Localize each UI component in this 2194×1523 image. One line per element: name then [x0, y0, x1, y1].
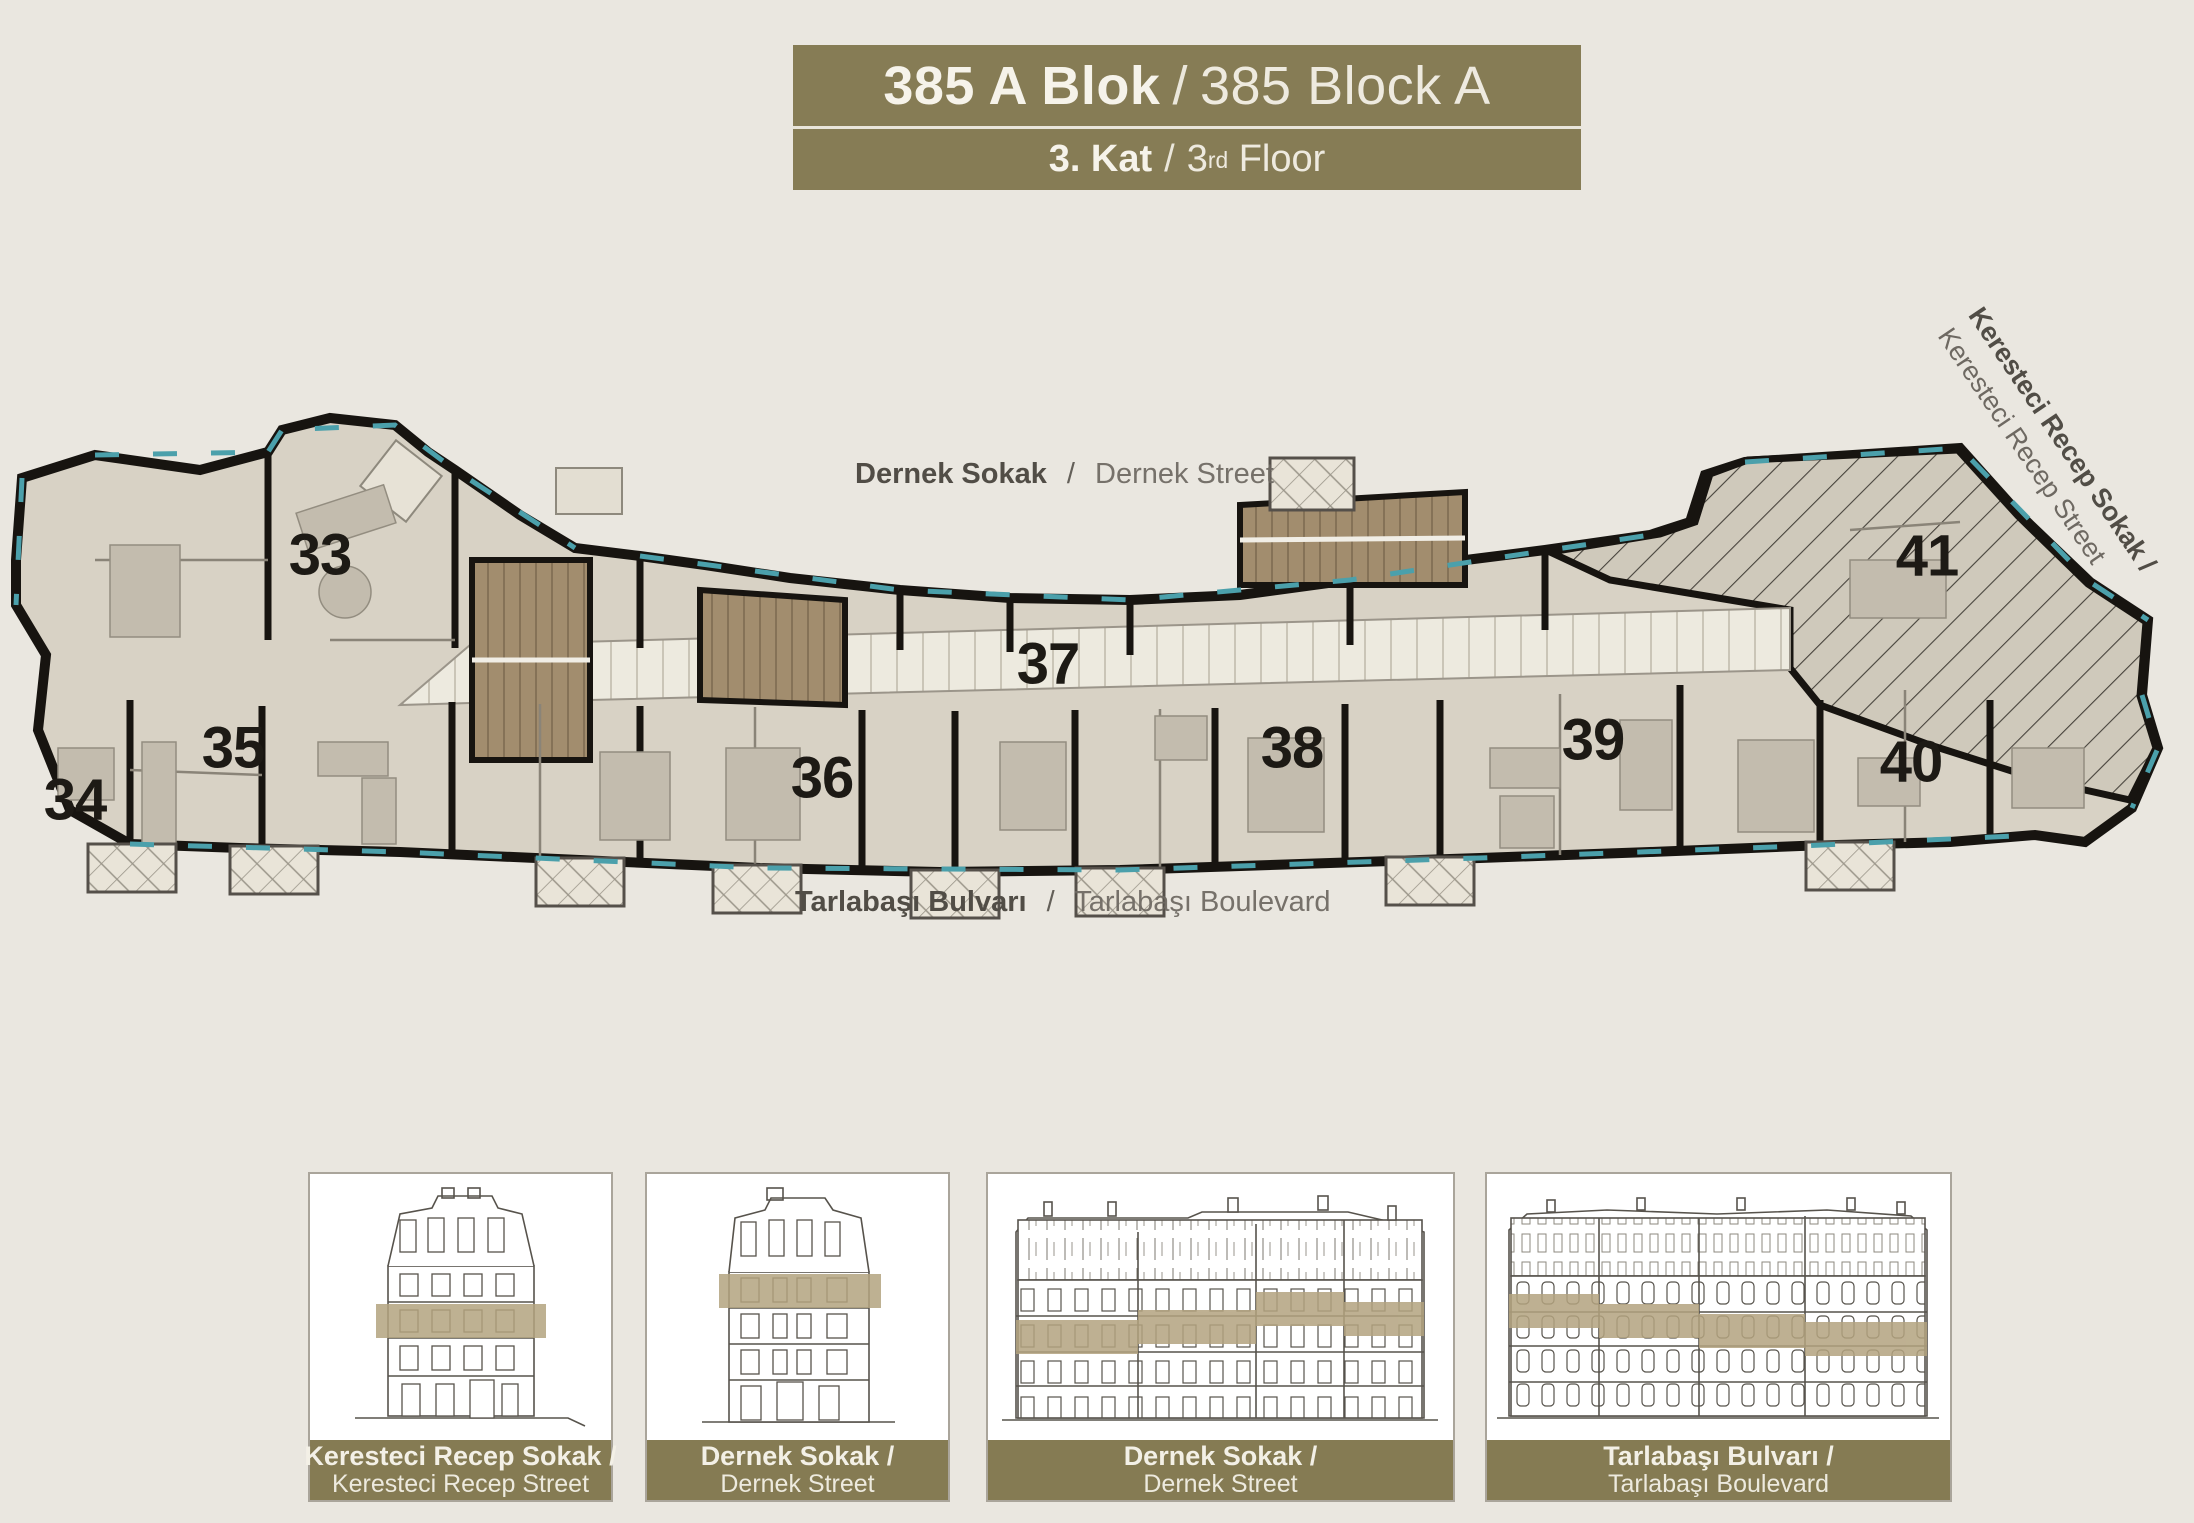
street-name-english: Tarlabaşı Boulevard	[1074, 886, 1330, 918]
elevation-card-dernek-row: Dernek Sokak / Dernek Street	[986, 1172, 1455, 1502]
title-line1: 385 A Blok / 385 Block A	[793, 45, 1581, 126]
elevation-card-tarlabasi: Tarlabaşı Bulvarı / Tarlabaşı Boulevard	[1485, 1172, 1952, 1502]
unit-number-33: 33	[289, 522, 352, 589]
elevation-caption: Dernek Sokak / Dernek Street	[647, 1440, 948, 1500]
roof-annex	[556, 468, 622, 514]
elevation-drawing	[647, 1174, 948, 1440]
unit-number-41: 41	[1896, 523, 1959, 590]
floor-number: 3	[1187, 138, 1208, 181]
unit-number-39: 39	[1562, 707, 1625, 774]
title-line2: 3. Kat / 3rd Floor	[793, 126, 1581, 190]
title-line1-english: 385 Block A	[1200, 55, 1491, 117]
caption-turkish: Dernek Sokak /	[1124, 1442, 1318, 1470]
unit-number-36: 36	[791, 745, 854, 812]
caption-english: Dernek Street	[1143, 1470, 1297, 1498]
elevation-card-dernek-single: Dernek Sokak / Dernek Street	[645, 1172, 950, 1502]
caption-english: Tarlabaşı Boulevard	[1608, 1470, 1829, 1498]
street-name-turkish: Dernek Sokak	[855, 458, 1047, 490]
elevation-caption: Dernek Sokak / Dernek Street	[988, 1440, 1453, 1500]
caption-turkish: Dernek Sokak /	[701, 1442, 895, 1470]
title-separator: /	[1164, 138, 1175, 181]
stair-core	[700, 590, 845, 705]
street-name-turkish: Tarlabaşı Bulvarı	[795, 886, 1027, 918]
unit-number-37: 37	[1017, 631, 1080, 698]
title-line1-turkish: 385 A Blok	[883, 55, 1160, 117]
title-separator: /	[1172, 55, 1188, 117]
street-label-dernek: Dernek Sokak / Dernek Street	[855, 458, 1274, 491]
street-label-tarlabasi: Tarlabaşı Bulvarı / Tarlabaşı Boulevard	[795, 886, 1331, 919]
street-name-english: Dernek Street	[1095, 458, 1274, 490]
floor-highlight-band	[719, 1274, 881, 1308]
street-separator: /	[1067, 458, 1075, 490]
unit-number-38: 38	[1261, 715, 1324, 782]
unit-number-40: 40	[1880, 729, 1943, 796]
stair-divider	[1240, 538, 1465, 540]
elevation-drawing	[310, 1174, 611, 1440]
caption-turkish: Tarlabaşı Bulvarı /	[1603, 1442, 1834, 1470]
elevation-caption: Keresteci Recep Sokak / Keresteci Recep …	[310, 1440, 611, 1500]
elevation-card-keresteci: Keresteci Recep Sokak / Keresteci Recep …	[308, 1172, 613, 1502]
floor-highlight-band	[376, 1304, 546, 1338]
floor-word: Floor	[1228, 138, 1325, 181]
caption-english: Keresteci Recep Street	[332, 1470, 589, 1498]
elevation-drawing	[1487, 1174, 1950, 1440]
caption-turkish: Keresteci Recep Sokak /	[304, 1442, 616, 1470]
elevation-caption: Tarlabaşı Bulvarı / Tarlabaşı Boulevard	[1487, 1440, 1950, 1500]
elevation-drawing	[988, 1174, 1453, 1440]
title-line2-turkish: 3. Kat	[1049, 138, 1152, 181]
street-separator: /	[1047, 886, 1055, 918]
title-banner: 385 A Blok / 385 Block A 3. Kat / 3rd Fl…	[793, 45, 1581, 190]
caption-english: Dernek Street	[720, 1470, 874, 1498]
unit-number-34: 34	[44, 767, 107, 834]
unit-number-35: 35	[202, 715, 265, 782]
